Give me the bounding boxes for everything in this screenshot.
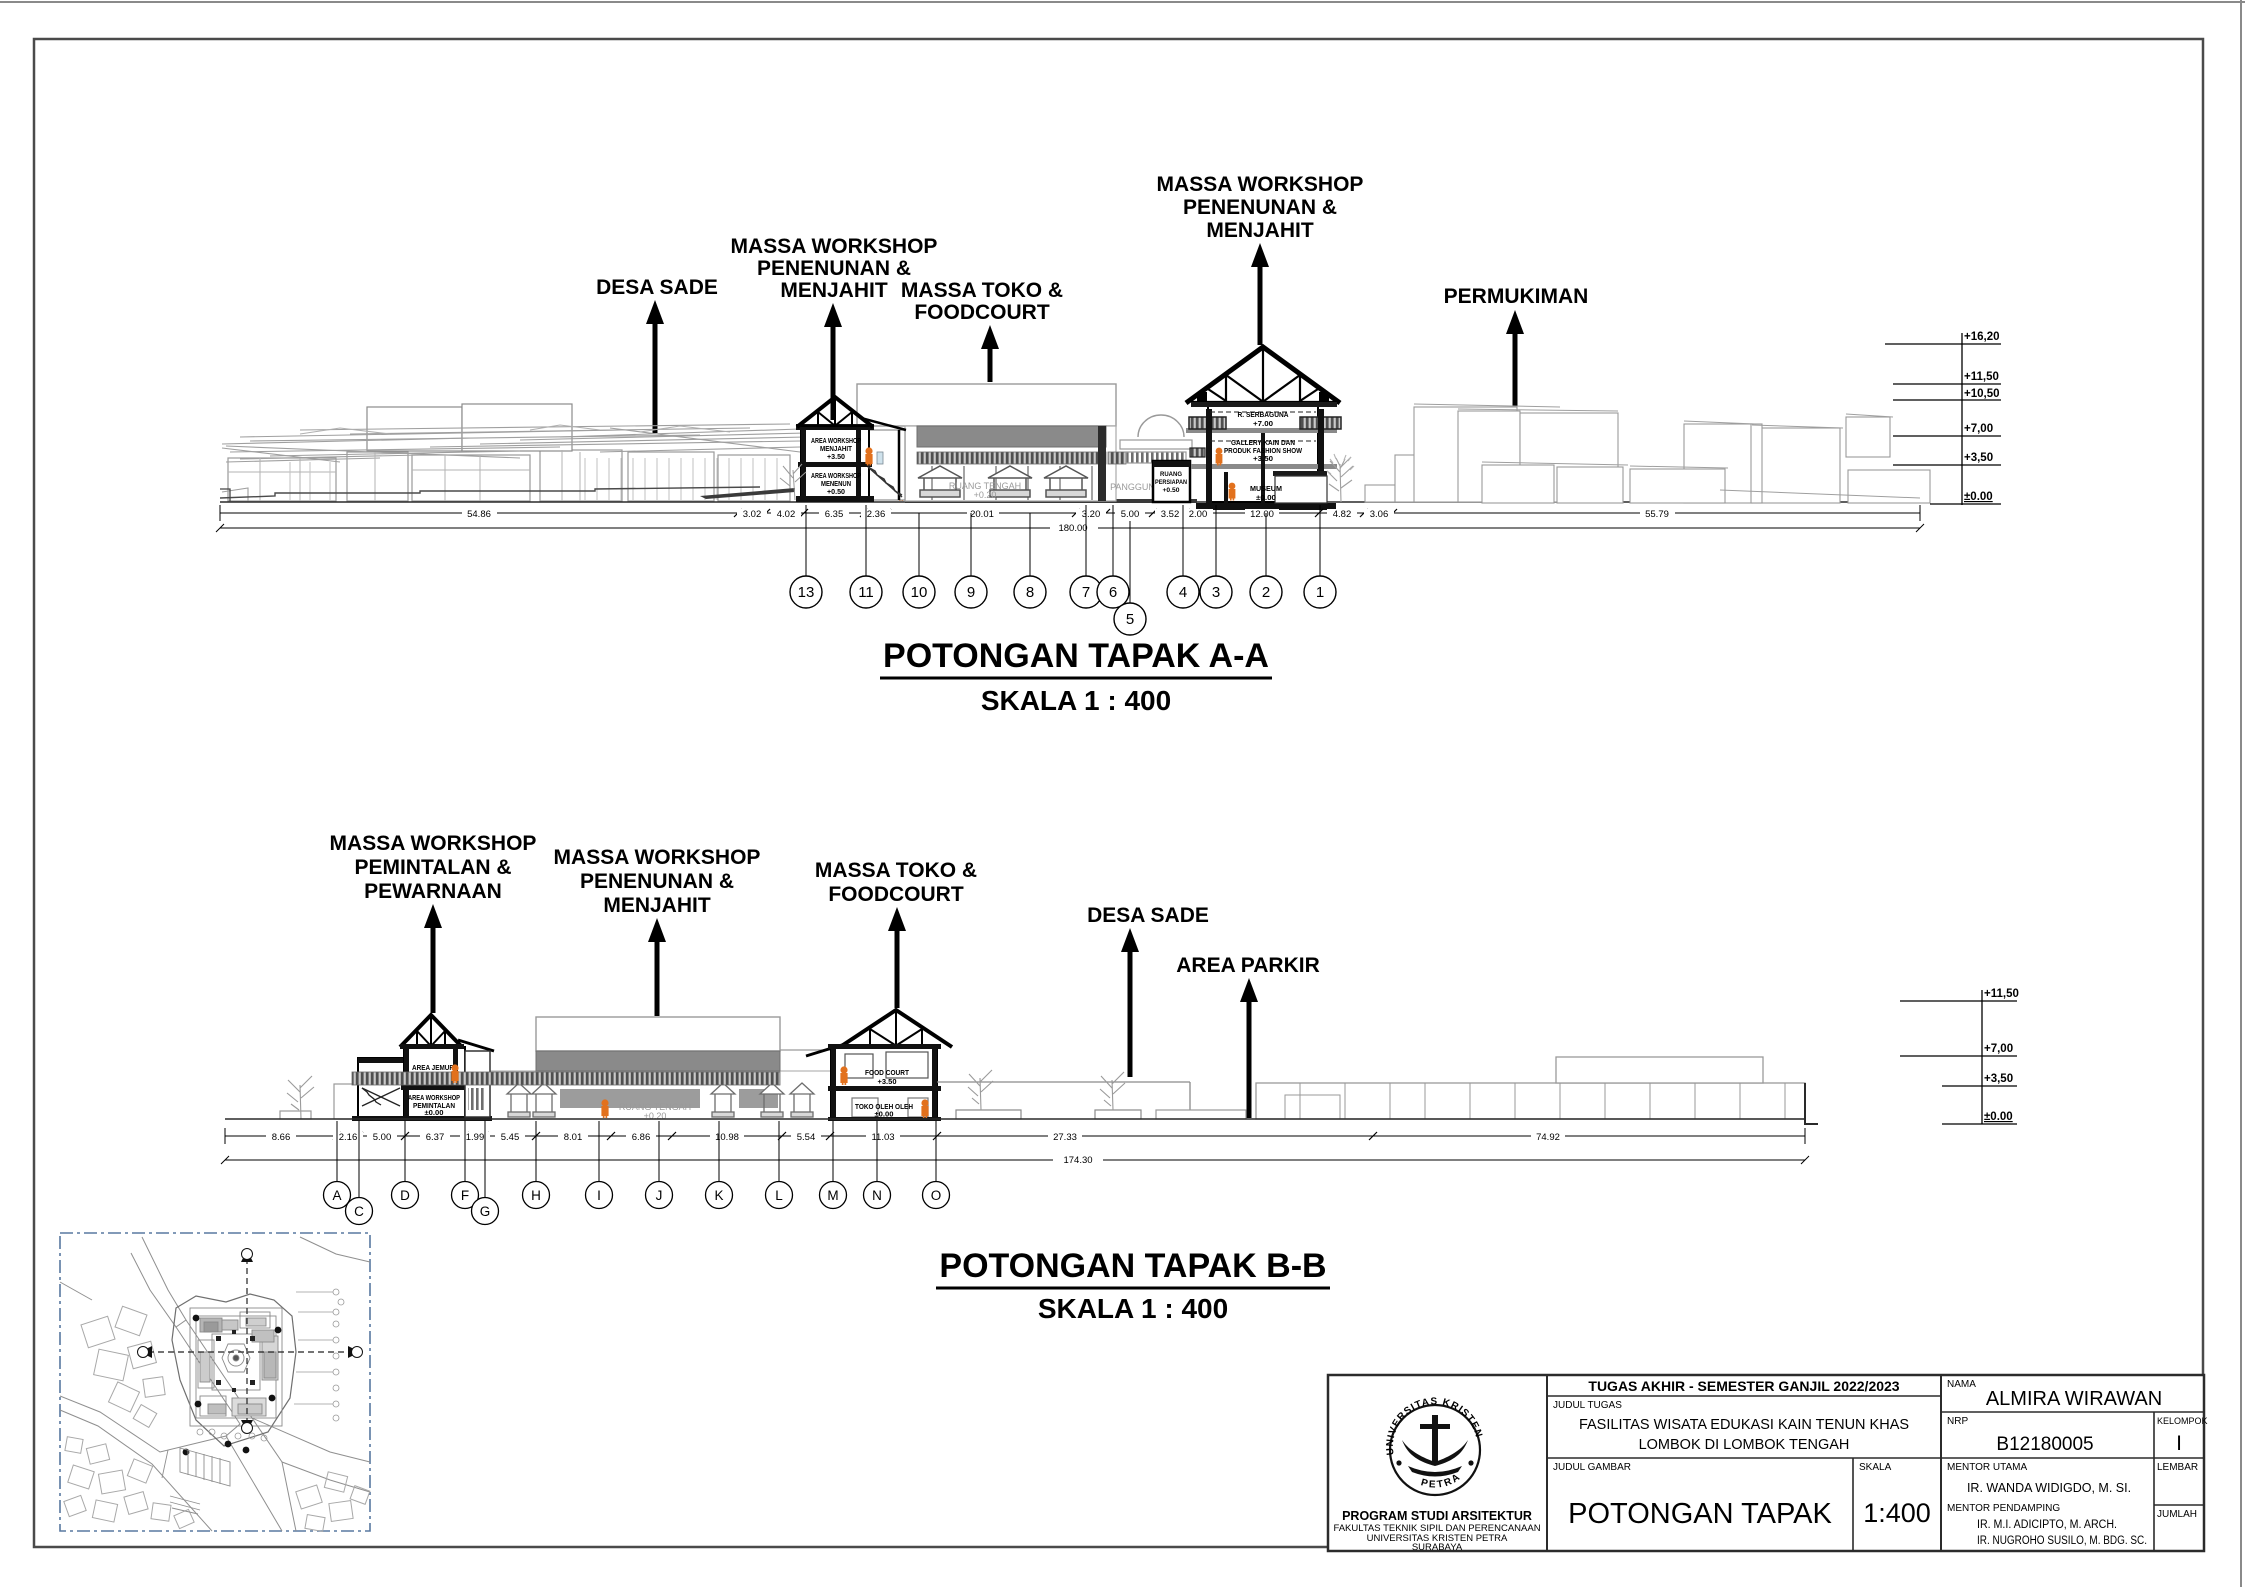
- svg-text:4: 4: [1179, 584, 1187, 601]
- svg-text:MENTOR PENDAMPING: MENTOR PENDAMPING: [1947, 1503, 2060, 1514]
- svg-text:±0.00: ±0.00: [1256, 493, 1276, 502]
- svg-text:IR. NUGROHO SUSILO, M. BDG. SC: IR. NUGROHO SUSILO, M. BDG. SC.: [1977, 1535, 2147, 1547]
- svg-text:MASSA WORKSHOP: MASSA WORKSHOP: [1157, 173, 1364, 196]
- svg-text:8: 8: [1026, 584, 1034, 601]
- svg-text:+16,20: +16,20: [1964, 331, 2000, 343]
- svg-text:2.16: 2.16: [339, 1132, 358, 1143]
- svg-text:MASSA WORKSHOP: MASSA WORKSHOP: [731, 235, 938, 258]
- svg-text:O: O: [931, 1188, 942, 1203]
- svg-text:+3.50: +3.50: [827, 454, 845, 461]
- svg-text:180.00: 180.00: [1058, 523, 1087, 534]
- svg-text:AREA WORKSHOP: AREA WORKSHOP: [811, 473, 861, 480]
- svg-text:FOODCOURT: FOODCOURT: [828, 883, 963, 906]
- svg-text:±0.00: ±0.00: [1984, 1111, 2013, 1123]
- svg-text:POTONGAN TAPAK: POTONGAN TAPAK: [1568, 1498, 1832, 1530]
- svg-text:27.33: 27.33: [1053, 1132, 1077, 1143]
- svg-text:FOODCOURT: FOODCOURT: [914, 301, 1049, 324]
- svg-text:1: 1: [1316, 584, 1324, 601]
- svg-text:5.45: 5.45: [501, 1132, 520, 1143]
- svg-text:F: F: [461, 1188, 469, 1203]
- svg-text:7: 7: [1082, 584, 1090, 601]
- svg-text:3.52: 3.52: [1161, 509, 1180, 520]
- svg-text:11: 11: [858, 584, 874, 601]
- svg-text:NRP: NRP: [1947, 1416, 1968, 1427]
- svg-text:±0.00: ±0.00: [875, 1110, 894, 1119]
- svg-text:J: J: [656, 1188, 663, 1203]
- svg-text:54.86: 54.86: [467, 509, 491, 520]
- svg-text:8.01: 8.01: [564, 1132, 583, 1143]
- svg-text:3.20: 3.20: [1082, 509, 1101, 520]
- svg-text:1.99: 1.99: [466, 1132, 485, 1143]
- svg-text:174.30: 174.30: [1063, 1155, 1092, 1166]
- svg-text:6.37: 6.37: [426, 1132, 445, 1143]
- svg-text:L: L: [775, 1188, 783, 1203]
- svg-text:SKALA 1 : 400: SKALA 1 : 400: [981, 685, 1171, 716]
- svg-text:11.03: 11.03: [871, 1132, 894, 1143]
- svg-text:12.00: 12.00: [1250, 509, 1274, 520]
- svg-text:+7,00: +7,00: [1964, 423, 1993, 435]
- svg-text:+3,50: +3,50: [1964, 452, 1993, 464]
- svg-text:PERMUKIMAN: PERMUKIMAN: [1444, 285, 1589, 308]
- svg-text:JUDUL TUGAS: JUDUL TUGAS: [1553, 1400, 1622, 1411]
- svg-text:LEMBAR: LEMBAR: [2157, 1462, 2198, 1473]
- svg-text:10: 10: [911, 584, 928, 601]
- svg-text:2: 2: [1262, 584, 1270, 601]
- svg-text:+0.50: +0.50: [1163, 487, 1180, 494]
- svg-text:MENJAHIT: MENJAHIT: [603, 894, 711, 917]
- svg-text:1:400: 1:400: [1863, 1498, 1931, 1528]
- svg-text:C: C: [354, 1204, 364, 1219]
- svg-text:M: M: [827, 1188, 838, 1203]
- svg-text:D: D: [400, 1188, 410, 1203]
- svg-text:MASSA TOKO &: MASSA TOKO &: [815, 859, 977, 882]
- svg-text:A: A: [332, 1188, 341, 1203]
- svg-text:FOOD COURT: FOOD COURT: [865, 1068, 909, 1077]
- svg-text:KELOMPOK: KELOMPOK: [2157, 1416, 2208, 1426]
- svg-text:+10,50: +10,50: [1964, 388, 2000, 400]
- svg-text:H: H: [531, 1188, 541, 1203]
- svg-text:4.82: 4.82: [1333, 509, 1352, 520]
- svg-text:±0.00: ±0.00: [1964, 491, 1993, 503]
- svg-text:MASSA WORKSHOP: MASSA WORKSHOP: [554, 846, 761, 869]
- svg-text:MENJAHIT: MENJAHIT: [820, 446, 853, 453]
- svg-text:PENENUNAN &: PENENUNAN &: [580, 870, 734, 893]
- svg-text:IR. M.I. ADICIPTO, M. ARCH.: IR. M.I. ADICIPTO, M. ARCH.: [1977, 1519, 2117, 1531]
- svg-text:JUMLAH: JUMLAH: [2157, 1509, 2197, 1520]
- svg-text:2.36: 2.36: [867, 509, 886, 520]
- svg-text:8.66: 8.66: [272, 1132, 291, 1143]
- svg-text:+0.50: +0.50: [827, 489, 845, 496]
- svg-text:I: I: [597, 1188, 601, 1203]
- svg-text:3: 3: [1212, 584, 1220, 601]
- svg-text:4.02: 4.02: [777, 509, 796, 520]
- svg-text:SURABAYA: SURABAYA: [1412, 1542, 1463, 1553]
- svg-text:SKALA: SKALA: [1859, 1462, 1892, 1473]
- svg-text:MENTOR UTAMA: MENTOR UTAMA: [1947, 1462, 2028, 1473]
- svg-text:20.01: 20.01: [970, 509, 994, 520]
- svg-text:+3,50: +3,50: [1984, 1073, 2013, 1085]
- svg-text:+7.00: +7.00: [1253, 419, 1273, 428]
- svg-text:5.00: 5.00: [1121, 509, 1140, 520]
- svg-text:PEMINTALAN &: PEMINTALAN &: [354, 856, 511, 879]
- svg-text:9: 9: [967, 584, 975, 601]
- svg-text:3.06: 3.06: [1370, 509, 1389, 520]
- svg-text:LOMBOK DI LOMBOK TENGAH: LOMBOK DI LOMBOK TENGAH: [1639, 1437, 1850, 1453]
- svg-text:G: G: [480, 1204, 491, 1219]
- svg-text:DESA SADE: DESA SADE: [1087, 904, 1209, 927]
- svg-text:DESA SADE: DESA SADE: [596, 276, 718, 299]
- svg-text:5.54: 5.54: [797, 1132, 816, 1143]
- svg-text:5: 5: [1126, 611, 1134, 628]
- svg-text:AREA JEMUR: AREA JEMUR: [412, 1063, 454, 1072]
- svg-text:3.02: 3.02: [743, 509, 762, 520]
- svg-text:R. SERBAGUNA: R. SERBAGUNA: [1238, 410, 1290, 419]
- svg-text:6.86: 6.86: [632, 1132, 651, 1143]
- svg-text:+3.50: +3.50: [1253, 454, 1273, 463]
- svg-text:55.79: 55.79: [1645, 509, 1669, 520]
- svg-text:N: N: [872, 1188, 882, 1203]
- svg-text:B12180005: B12180005: [1996, 1434, 2093, 1455]
- svg-text:K: K: [714, 1188, 723, 1203]
- svg-text:POTONGAN TAPAK A-A: POTONGAN TAPAK A-A: [883, 637, 1269, 675]
- svg-text:SKALA 1 : 400: SKALA 1 : 400: [1038, 1293, 1228, 1324]
- svg-text:POTONGAN TAPAK B-B: POTONGAN TAPAK B-B: [939, 1247, 1326, 1285]
- svg-text:MUSEUM: MUSEUM: [1250, 484, 1282, 493]
- svg-text:13: 13: [798, 584, 815, 601]
- svg-text:PEWARNAAN: PEWARNAAN: [364, 880, 502, 903]
- svg-text:±0.00: ±0.00: [425, 1108, 444, 1117]
- svg-text:+3.50: +3.50: [878, 1077, 897, 1086]
- svg-text:5.00: 5.00: [373, 1132, 392, 1143]
- svg-text:+11,50: +11,50: [1964, 371, 1999, 383]
- svg-text:MENJAHIT: MENJAHIT: [1206, 219, 1314, 242]
- svg-text:I: I: [2176, 1432, 2182, 1455]
- svg-text:MASSA TOKO &: MASSA TOKO &: [901, 279, 1063, 302]
- svg-text:NAMA: NAMA: [1947, 1379, 1976, 1390]
- svg-text:RUANG: RUANG: [1160, 471, 1182, 478]
- svg-text:74.92: 74.92: [1536, 1132, 1560, 1143]
- svg-text:TUGAS AKHIR - SEMESTER GANJIL: TUGAS AKHIR - SEMESTER GANJIL 2022/2023: [1588, 1378, 1899, 1394]
- svg-text:MASSA WORKSHOP: MASSA WORKSHOP: [330, 832, 537, 855]
- svg-text:PERSIAPAN: PERSIAPAN: [1155, 479, 1187, 486]
- svg-text:JUDUL GAMBAR: JUDUL GAMBAR: [1553, 1462, 1631, 1473]
- svg-text:MENENUN: MENENUN: [821, 481, 851, 488]
- svg-text:2.00: 2.00: [1189, 509, 1208, 520]
- svg-text:AREA WORKSHOP: AREA WORKSHOP: [811, 438, 861, 445]
- svg-text:+11,50: +11,50: [1984, 988, 2019, 1000]
- svg-text:6: 6: [1109, 584, 1117, 601]
- svg-text:FASILITAS WISATA EDUKASI KAIN: FASILITAS WISATA EDUKASI KAIN TENUN KHAS: [1579, 1417, 1909, 1433]
- svg-text:ALMIRA WIRAWAN: ALMIRA WIRAWAN: [1986, 1388, 2162, 1410]
- svg-text:+7,00: +7,00: [1984, 1043, 2013, 1055]
- svg-text:6.35: 6.35: [825, 509, 844, 520]
- svg-text:+0.20: +0.20: [974, 490, 997, 500]
- svg-text:IR. WANDA WIDIGDO, M. SI.: IR. WANDA WIDIGDO, M. SI.: [1967, 1481, 2131, 1495]
- svg-text:PROGRAM STUDI ARSITEKTUR: PROGRAM STUDI ARSITEKTUR: [1342, 1509, 1532, 1523]
- svg-text:AREA PARKIR: AREA PARKIR: [1176, 954, 1320, 977]
- svg-text:PENENUNAN &: PENENUNAN &: [1183, 196, 1337, 219]
- svg-text:MENJAHIT: MENJAHIT: [780, 279, 888, 302]
- svg-text:PENENUNAN &: PENENUNAN &: [757, 257, 911, 280]
